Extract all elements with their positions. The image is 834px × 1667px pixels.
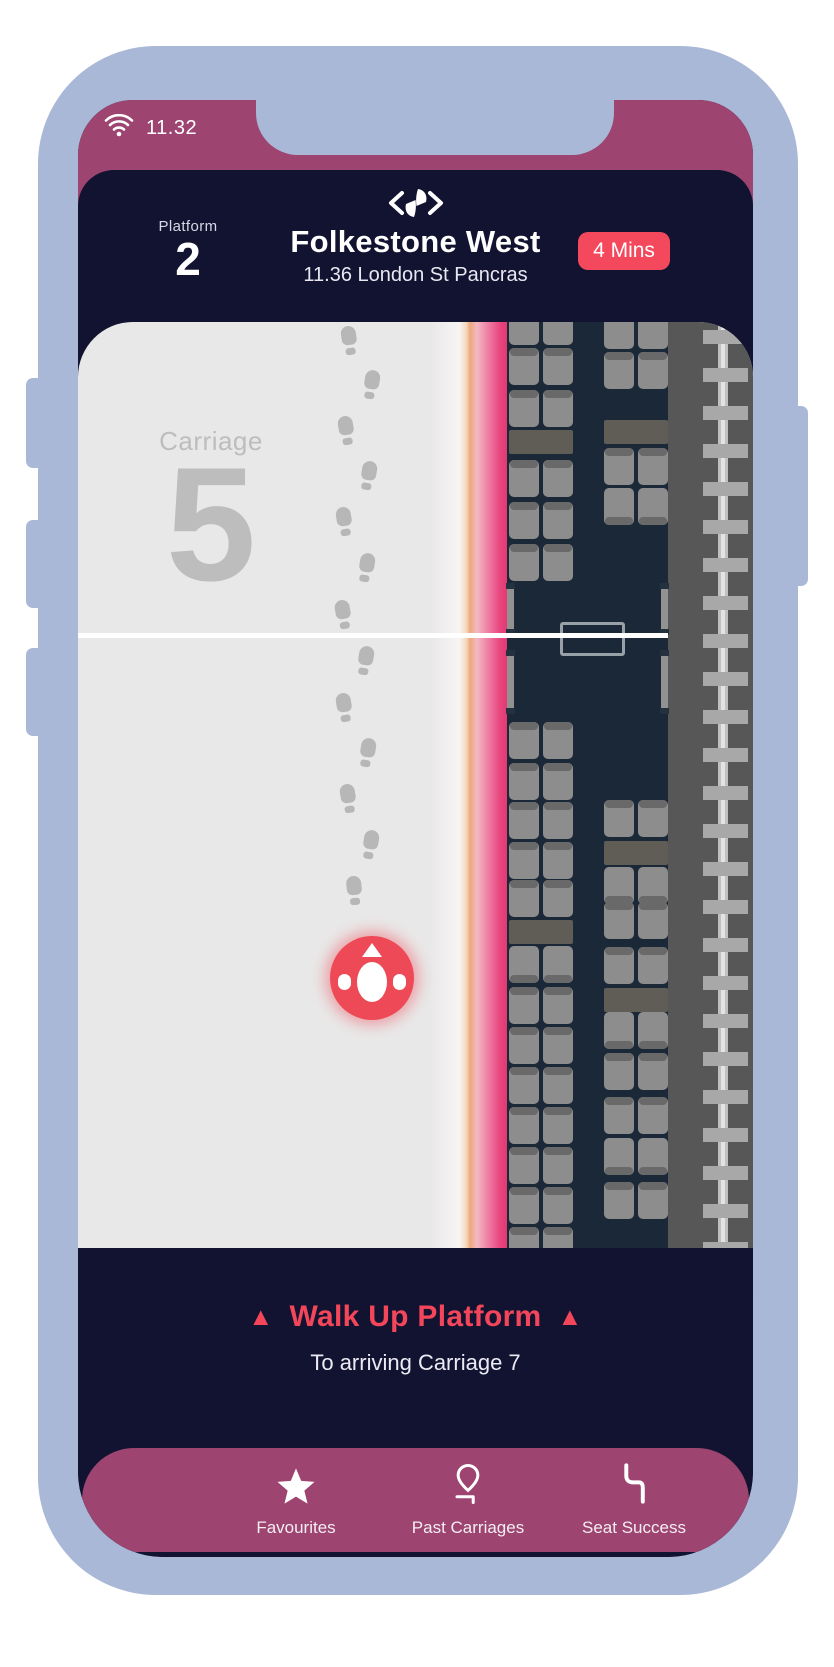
track-sleeper <box>703 862 748 876</box>
track-sleeper <box>703 406 748 420</box>
footprint <box>358 460 378 492</box>
seat-icon <box>617 1460 651 1506</box>
track-sleeper <box>703 444 748 458</box>
seat-pair <box>509 1147 573 1184</box>
track-sleeper <box>703 520 748 534</box>
seat-pair <box>509 1027 573 1064</box>
seat-pair <box>509 763 573 800</box>
footprint <box>334 506 354 538</box>
carriage-boundary-line <box>78 633 668 638</box>
footprint <box>355 645 375 677</box>
seat-pair <box>509 1107 573 1144</box>
seat-pair <box>509 322 573 345</box>
track-sleeper <box>703 1166 748 1180</box>
seat-pair <box>604 352 668 389</box>
footprint <box>333 599 354 631</box>
phone-frame: 11.32 Platform 2 Folkestone West 11.36 L… <box>38 46 798 1595</box>
train-door <box>661 652 668 712</box>
seat-pair <box>604 488 668 525</box>
nav-item-favourites[interactable]: Favourites <box>211 1448 381 1552</box>
seat-pair <box>509 390 573 427</box>
railway-track <box>668 322 753 1248</box>
walk-instruction: ▲ Walk Up Platform ▲ <box>78 1300 753 1334</box>
seat-pair <box>509 802 573 839</box>
footprint <box>356 552 376 584</box>
seat-pair <box>604 800 668 837</box>
user-location-marker <box>330 936 414 1020</box>
seat-table <box>604 841 668 865</box>
track-sleeper <box>703 710 748 724</box>
track-sleeper <box>703 976 748 990</box>
rail <box>718 322 728 1248</box>
person-icon <box>357 962 387 1002</box>
seat-pair <box>509 1227 573 1248</box>
seat-pair <box>604 947 668 984</box>
track-sleeper <box>703 672 748 686</box>
seat-pair <box>604 1097 668 1134</box>
seat-pair <box>509 1067 573 1104</box>
footprint <box>339 325 359 357</box>
seat-pair <box>509 946 573 983</box>
footprint <box>336 415 356 447</box>
seat-table <box>509 430 573 454</box>
footprint <box>344 875 363 907</box>
star-icon <box>276 1460 316 1506</box>
phone-notch <box>256 100 614 155</box>
seat-pair <box>509 348 573 385</box>
footprint <box>338 783 358 815</box>
seat-pair <box>604 448 668 485</box>
track-sleeper <box>703 1090 748 1104</box>
phone-screen: 11.32 Platform 2 Folkestone West 11.36 L… <box>78 100 753 1557</box>
eye-logo-icon <box>387 186 445 225</box>
seat-table <box>604 420 668 444</box>
footprint <box>360 829 380 861</box>
track-sleeper <box>703 368 748 382</box>
status-time: 11.32 <box>146 117 197 140</box>
bottom-nav-bar: Favourites Past Carriages Seat Succes <box>82 1448 749 1552</box>
track-sleeper <box>703 558 748 572</box>
pin-icon <box>448 1460 488 1506</box>
wifi-icon <box>104 114 134 143</box>
up-arrow-icon: ▲ <box>248 1303 273 1332</box>
seat-pair <box>604 1053 668 1090</box>
seat-table <box>509 920 573 944</box>
seat-pair <box>509 987 573 1024</box>
seat-pair <box>604 322 668 349</box>
track-sleeper <box>703 482 748 496</box>
nav-item-past-carriages[interactable]: Past Carriages <box>383 1448 553 1552</box>
nav-item-seat-success[interactable]: Seat Success <box>549 1448 719 1552</box>
seat-pair <box>509 1187 573 1224</box>
seat-pair <box>509 880 573 917</box>
seat-pair <box>604 902 668 939</box>
seat-pair <box>604 867 668 904</box>
train-door <box>661 585 668 633</box>
seat-table <box>604 988 668 1012</box>
eta-badge[interactable]: 4 Mins <box>578 232 670 270</box>
seat-pair <box>509 502 573 539</box>
track-sleeper <box>703 596 748 610</box>
seat-pair <box>604 1138 668 1175</box>
nav-label: Favourites <box>256 1518 335 1538</box>
track-sleeper <box>703 1014 748 1028</box>
platform-edge-gradient <box>430 322 507 1248</box>
up-arrow-icon: ▲ <box>558 1303 583 1332</box>
track-sleeper <box>703 900 748 914</box>
footprint <box>357 737 377 769</box>
track-sleeper <box>703 938 748 952</box>
seat-pair <box>509 544 573 581</box>
track-sleeper <box>703 786 748 800</box>
seat-pair <box>509 460 573 497</box>
seat-pair <box>509 842 573 879</box>
track-sleeper <box>703 824 748 838</box>
track-sleeper <box>703 1204 748 1218</box>
seat-pair <box>604 1012 668 1049</box>
footprint <box>334 692 354 724</box>
walk-instruction-title: Walk Up Platform <box>289 1300 541 1334</box>
track-sleeper <box>703 330 748 344</box>
carriage-coupling <box>560 622 625 656</box>
track-sleeper <box>703 634 748 648</box>
platform-map: Carriage 5 <box>78 322 753 1248</box>
carriage-zone-number: 5 <box>138 444 284 606</box>
train-door <box>507 652 514 712</box>
footprint <box>361 369 381 401</box>
track-sleeper <box>703 748 748 762</box>
direction-arrow-icon <box>362 943 382 957</box>
seat-pair <box>604 1182 668 1219</box>
journey-header: Platform 2 Folkestone West 11.36 London … <box>78 170 753 322</box>
seat-pair <box>509 722 573 759</box>
walk-instruction-subtitle: To arriving Carriage 7 <box>78 1350 753 1376</box>
track-sleeper <box>703 1052 748 1066</box>
train-door <box>507 585 514 633</box>
track-sleeper <box>703 1128 748 1142</box>
nav-label: Past Carriages <box>412 1518 524 1538</box>
nav-label: Seat Success <box>582 1518 686 1538</box>
